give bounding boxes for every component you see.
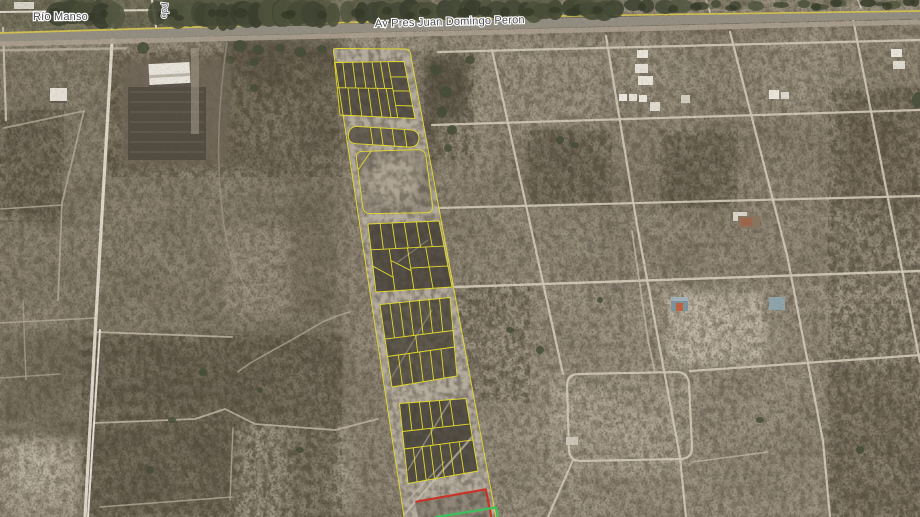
svg-text:opd: opd xyxy=(158,2,171,19)
svg-text:Río Manso: Río Manso xyxy=(33,11,88,23)
